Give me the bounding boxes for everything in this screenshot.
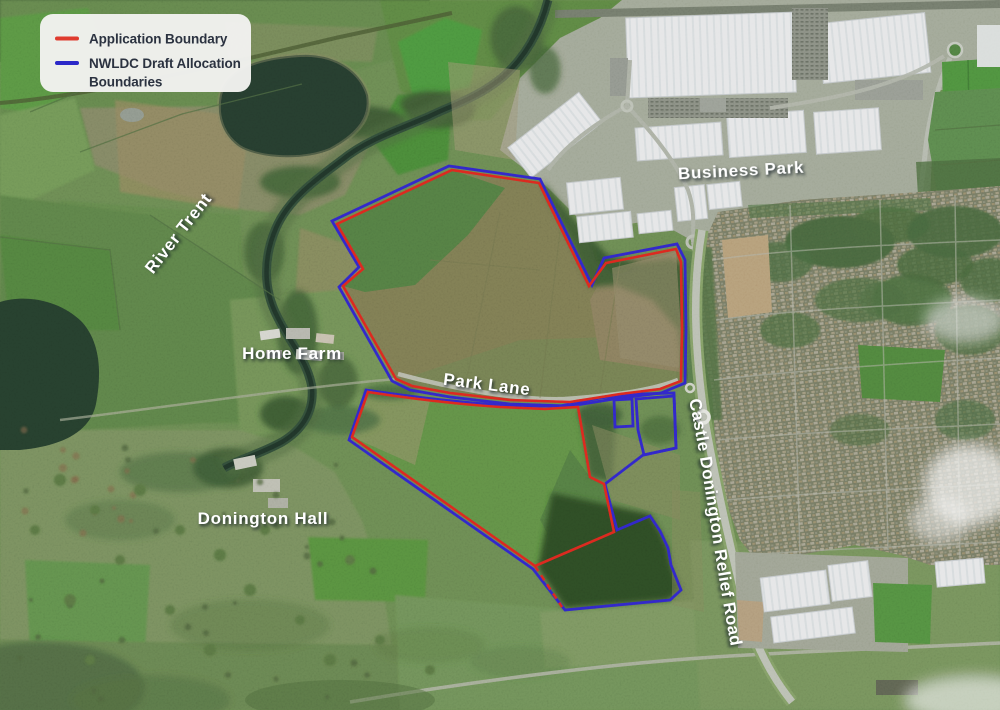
svg-text:Donington Hall: Donington Hall [198, 509, 329, 528]
svg-text:Boundaries: Boundaries [89, 75, 162, 90]
svg-text:Home Farm: Home Farm [242, 344, 342, 363]
svg-text:Application Boundary: Application Boundary [89, 32, 228, 47]
svg-text:NWLDC Draft Allocation: NWLDC Draft Allocation [89, 56, 241, 71]
